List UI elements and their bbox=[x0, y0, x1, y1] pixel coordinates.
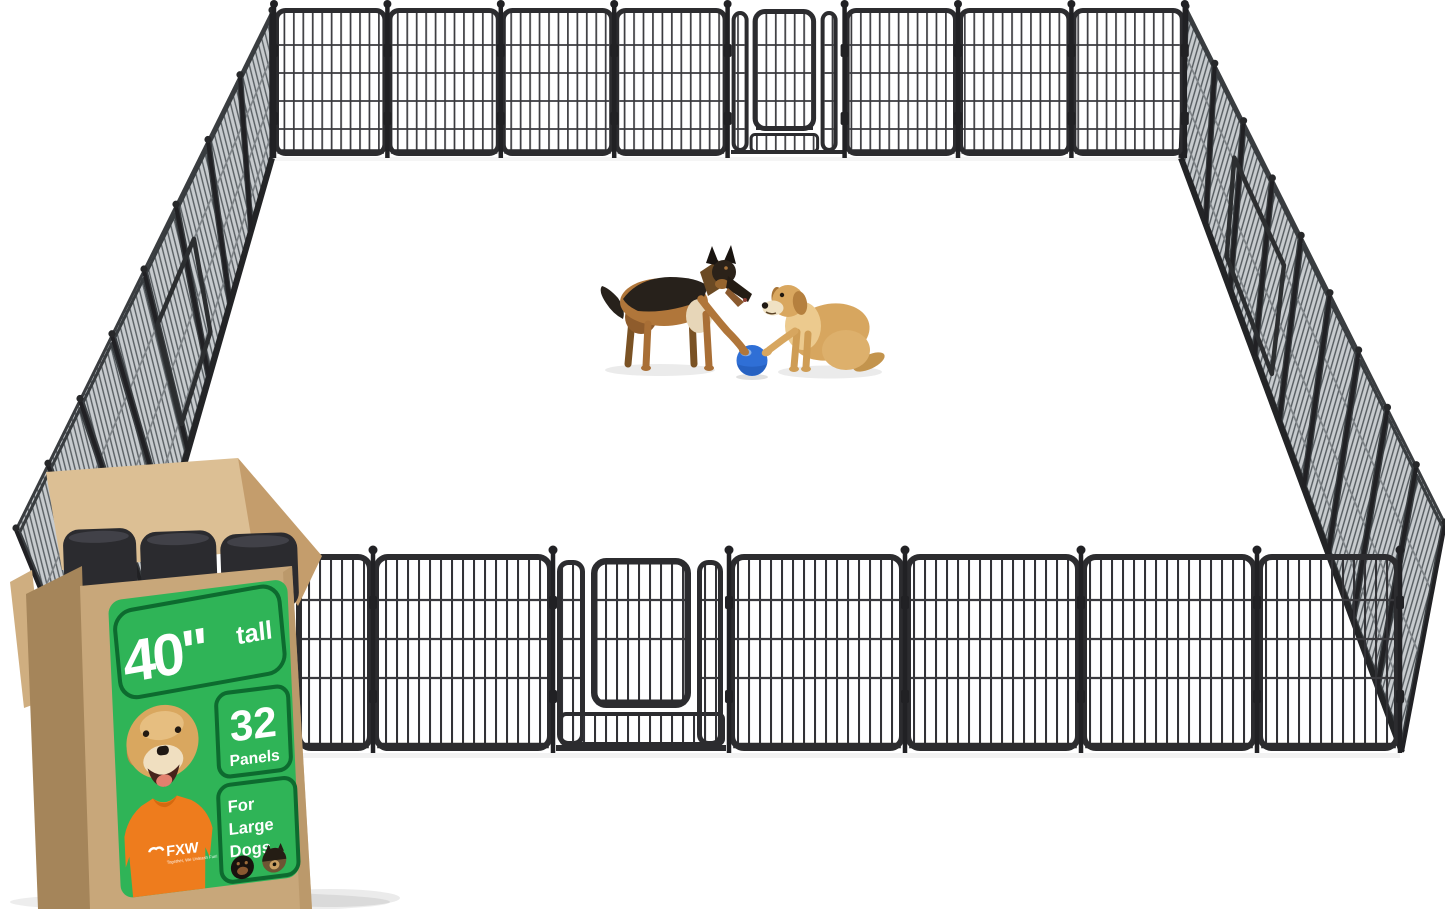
panel-connector bbox=[610, 112, 618, 125]
panel-connector bbox=[369, 690, 377, 703]
audience-line1: For bbox=[227, 794, 255, 816]
golden-paw bbox=[789, 366, 799, 372]
gate-side-panel bbox=[700, 563, 721, 744]
post-finial bbox=[1396, 546, 1405, 555]
fence-panel bbox=[1074, 11, 1182, 154]
post-finial bbox=[610, 0, 618, 8]
panel-connector bbox=[724, 44, 732, 57]
panel-connector bbox=[725, 690, 733, 703]
panel-connector bbox=[1181, 44, 1189, 57]
panel-connector bbox=[1396, 596, 1404, 609]
post-finial bbox=[1067, 0, 1075, 8]
gate-door bbox=[755, 12, 814, 129]
panel-connector bbox=[1396, 690, 1404, 703]
golden-haunch bbox=[822, 330, 870, 370]
post-finial bbox=[1326, 289, 1333, 296]
fence-panel bbox=[732, 557, 902, 748]
gsd-paw bbox=[704, 365, 714, 371]
golden-leg bbox=[806, 334, 808, 367]
post-finial bbox=[140, 265, 147, 272]
post-finial bbox=[1298, 232, 1305, 239]
fence-panel bbox=[299, 557, 370, 748]
panel-connector bbox=[549, 596, 557, 609]
post-finial bbox=[108, 330, 115, 337]
post-finial bbox=[1240, 117, 1247, 124]
fence-panel bbox=[376, 557, 550, 748]
gsd-mouth bbox=[743, 298, 747, 302]
post-finial bbox=[901, 546, 910, 555]
gsd-eye bbox=[724, 266, 728, 270]
fence-panel bbox=[390, 11, 498, 154]
fence-gate-top bbox=[731, 12, 843, 153]
post-finial bbox=[369, 546, 378, 555]
panel-connector bbox=[549, 690, 557, 703]
post-finial bbox=[204, 136, 211, 143]
gsd-paw bbox=[641, 365, 651, 371]
panel-connector bbox=[954, 44, 962, 57]
post-finial bbox=[270, 0, 278, 8]
fence-panel bbox=[503, 11, 611, 154]
panel-connector bbox=[901, 596, 909, 609]
post-finial bbox=[1181, 0, 1189, 8]
dogs-playing bbox=[601, 245, 888, 380]
panel-connector bbox=[270, 44, 278, 57]
golden-leg bbox=[794, 332, 797, 367]
shipping-box: 40" tall 32 Panels For Large Dogs bbox=[10, 458, 322, 909]
post-finial bbox=[549, 546, 558, 555]
german-shepherd-figure bbox=[601, 245, 752, 371]
post-finial bbox=[44, 460, 51, 467]
panel-connector bbox=[1077, 596, 1085, 609]
panel-connector bbox=[841, 112, 849, 125]
panel-connector bbox=[270, 112, 278, 125]
post-finial bbox=[236, 71, 243, 78]
panel-connector bbox=[1067, 44, 1075, 57]
fence-panel bbox=[961, 11, 1069, 154]
panel-connector bbox=[954, 112, 962, 125]
panel-connector bbox=[369, 596, 377, 609]
post-finial bbox=[1384, 404, 1391, 411]
fence-panel bbox=[277, 11, 385, 154]
fence-shadow bbox=[296, 753, 1400, 758]
fence-gate-bottom bbox=[556, 561, 726, 748]
fence-top-row bbox=[270, 0, 1189, 158]
post-finial bbox=[76, 395, 83, 402]
dog-shadow bbox=[605, 364, 715, 376]
gsd-leg bbox=[646, 324, 648, 366]
fence-panel bbox=[908, 557, 1078, 748]
fence-panel bbox=[617, 11, 725, 154]
panel-connector bbox=[1077, 690, 1085, 703]
post-finial bbox=[1253, 546, 1262, 555]
panel-connector bbox=[497, 44, 505, 57]
product-label: 40" tall 32 Panels For Large Dogs bbox=[108, 579, 300, 899]
panel-connector bbox=[725, 596, 733, 609]
post-finial bbox=[1355, 346, 1362, 353]
fence-panel bbox=[847, 11, 955, 154]
golden-retriever-figure bbox=[762, 285, 888, 376]
panel-count: 32 bbox=[229, 698, 278, 752]
wall-horizontal-wire bbox=[1185, 53, 1433, 592]
post-finial bbox=[954, 0, 962, 8]
panel-connector bbox=[610, 44, 618, 57]
panel-connector bbox=[383, 44, 391, 57]
panel-connector bbox=[497, 112, 505, 125]
gate-door bbox=[594, 561, 688, 705]
gsd-leg bbox=[706, 314, 709, 366]
post-finial bbox=[1413, 461, 1420, 468]
panel-connector bbox=[1067, 112, 1075, 125]
golden-paw bbox=[801, 366, 811, 372]
golden-nose bbox=[762, 302, 768, 308]
post-finial bbox=[172, 201, 179, 208]
gate-bottom-strip bbox=[751, 135, 818, 152]
post-finial bbox=[724, 0, 732, 8]
post-finial bbox=[1211, 60, 1218, 67]
post-finial bbox=[841, 0, 849, 8]
post-finial bbox=[725, 546, 734, 555]
panel-connector bbox=[901, 690, 909, 703]
golden-eye bbox=[780, 293, 784, 297]
post-finial bbox=[12, 524, 19, 531]
panel-connector bbox=[724, 112, 732, 125]
panel-connector bbox=[1253, 596, 1261, 609]
post-finial bbox=[383, 0, 391, 8]
panel-connector bbox=[1253, 690, 1261, 703]
fence-bottom-row bbox=[299, 546, 1405, 754]
post-finial bbox=[497, 0, 505, 8]
fence-panel bbox=[1260, 557, 1397, 748]
panel-connector bbox=[1181, 112, 1189, 125]
post-finial bbox=[1077, 546, 1086, 555]
product-image: 40" tall 32 Panels For Large Dogs bbox=[0, 0, 1445, 909]
panel-connector bbox=[841, 44, 849, 57]
post-finial bbox=[1269, 174, 1276, 181]
panel-connector bbox=[383, 112, 391, 125]
fence-panel bbox=[1084, 557, 1254, 748]
